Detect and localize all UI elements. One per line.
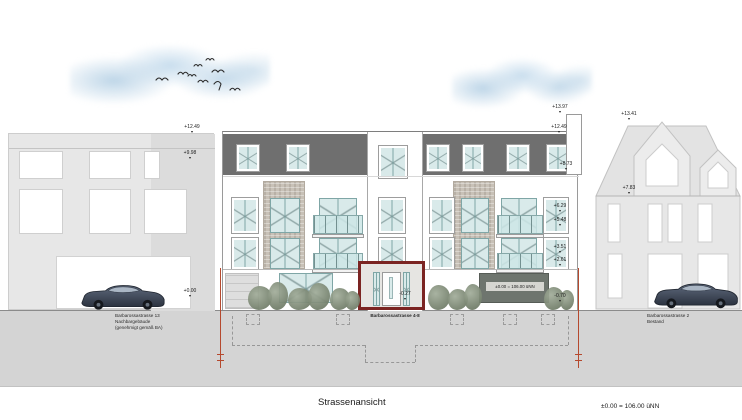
window: [19, 151, 63, 179]
balcony-railing: [313, 215, 363, 234]
basement-outline: [365, 362, 415, 363]
balcony-slab: [312, 234, 364, 238]
caption-right-building: Barbarossastrasse 2 Bestand: [647, 313, 717, 325]
boundary-line-left: [220, 268, 221, 368]
window: [144, 151, 160, 179]
window: [270, 198, 300, 233]
window: [232, 198, 258, 233]
birds-icon: [148, 52, 248, 100]
door-glass-slit: [389, 277, 393, 299]
attic-window: [237, 145, 259, 171]
elevation-drawing: ±0.00 = 106.00 üNN: [0, 0, 742, 420]
caption-line: (genehmigt gemäß BA): [115, 325, 195, 331]
caption-left-building: Barbarossastrasse 13 Nachbargebäude (gen…: [115, 313, 195, 331]
window: [430, 198, 454, 233]
attic-window: [287, 145, 309, 171]
elevation-mark: +0.00: [184, 288, 197, 297]
window: [270, 238, 300, 269]
entrance-portal: [358, 261, 425, 310]
light-well: [541, 314, 555, 325]
window: [461, 198, 489, 233]
elevation-mark: +6.29: [554, 203, 567, 212]
elevation-mark: +3.51: [554, 244, 567, 253]
basement-outline: [365, 345, 366, 362]
elevation-mark: +13.41: [621, 111, 636, 120]
stair-tower-window: [379, 146, 407, 178]
window: [19, 189, 63, 234]
basement-outline: [232, 345, 365, 346]
car-icon: [78, 282, 168, 310]
caption-line: Bestand: [647, 319, 717, 325]
attic-window: [463, 145, 483, 171]
basement-outline: [568, 316, 569, 345]
window: [232, 238, 258, 269]
window: [379, 198, 405, 233]
elevation-mark: +7.83: [623, 185, 636, 194]
parapet-line: [9, 148, 215, 149]
slab-line: [223, 176, 579, 177]
boundary-tick: [575, 360, 582, 361]
balcony-slab: [496, 234, 544, 238]
boundary-tick: [575, 354, 582, 355]
elevation-mark: -0.27: [399, 291, 410, 300]
elevation-mark: +2.61: [554, 257, 567, 266]
datum-note: ±0.00 = 106.00 üNN: [601, 403, 659, 410]
elevation-mark: +12.49: [551, 124, 566, 133]
car-icon: [652, 279, 740, 310]
elevation-mark: -0.70: [554, 293, 565, 302]
cloud-right: [452, 56, 592, 108]
window: [89, 189, 131, 234]
drawing-title: Strassenansicht: [318, 397, 386, 408]
elevation-mark: +8.73: [560, 161, 573, 170]
basement-outline: [415, 345, 416, 362]
elevation-mark: +5.48: [554, 217, 567, 226]
ground-datum-label: ±0.00 = 106.00 üNN: [486, 282, 544, 291]
elevation-mark: +12.49: [184, 124, 199, 133]
balcony-railing: [497, 253, 543, 269]
attic-window: [507, 145, 529, 171]
basement-outline: [415, 345, 568, 346]
ground-glazing: ±0.00 = 106.00 üNN: [479, 273, 549, 303]
boundary-line-right: [578, 268, 579, 368]
caption-main-building: Barbarossastrasse 4-8: [350, 313, 440, 319]
entrance-sidelight: [373, 272, 380, 306]
light-well: [503, 314, 517, 325]
light-well: [450, 314, 464, 325]
boundary-tick: [217, 354, 224, 355]
street-surface: [0, 310, 742, 387]
light-well: [336, 314, 350, 325]
window: [430, 238, 454, 269]
attic-window: [427, 145, 449, 171]
basement-outline: [232, 316, 233, 345]
window: [89, 151, 131, 179]
elevation-mark: +13.97: [552, 104, 567, 113]
light-well: [246, 314, 260, 325]
balcony-railing: [313, 253, 363, 269]
window: [461, 238, 489, 269]
elevation-mark: +9.98: [184, 150, 197, 159]
balcony-railing: [497, 215, 543, 234]
boundary-tick: [217, 360, 224, 361]
window: [144, 189, 187, 234]
